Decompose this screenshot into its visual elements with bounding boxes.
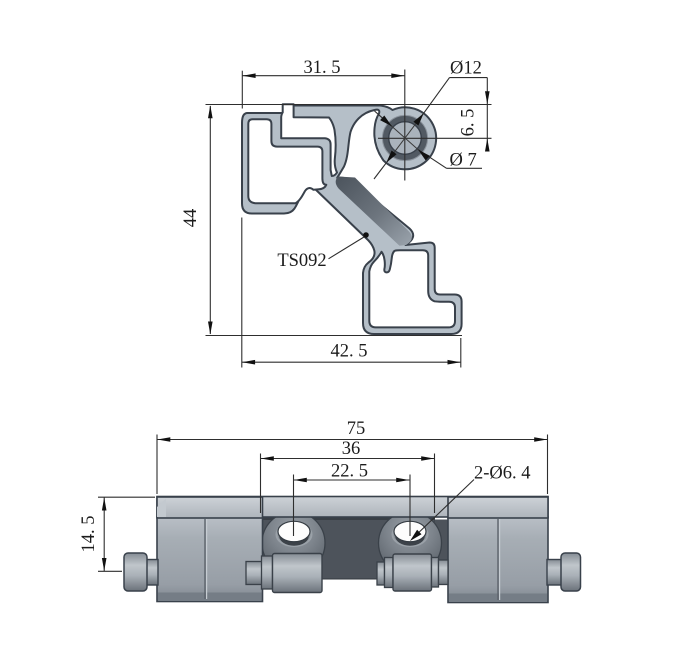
svg-text:22. 5: 22. 5 (331, 462, 368, 482)
svg-text:75: 75 (347, 419, 366, 439)
svg-text:42. 5: 42. 5 (331, 342, 368, 362)
svg-text:Ø12: Ø12 (450, 59, 482, 79)
svg-text:44: 44 (181, 209, 201, 228)
svg-text:31. 5: 31. 5 (304, 58, 341, 78)
svg-text:Ø 7: Ø 7 (450, 151, 477, 171)
svg-text:36: 36 (342, 439, 361, 459)
svg-text:TS092: TS092 (277, 251, 326, 271)
svg-text:6. 5: 6. 5 (459, 109, 479, 137)
svg-text:2-Ø6. 4: 2-Ø6. 4 (474, 464, 531, 484)
svg-text:14. 5: 14. 5 (79, 516, 99, 553)
